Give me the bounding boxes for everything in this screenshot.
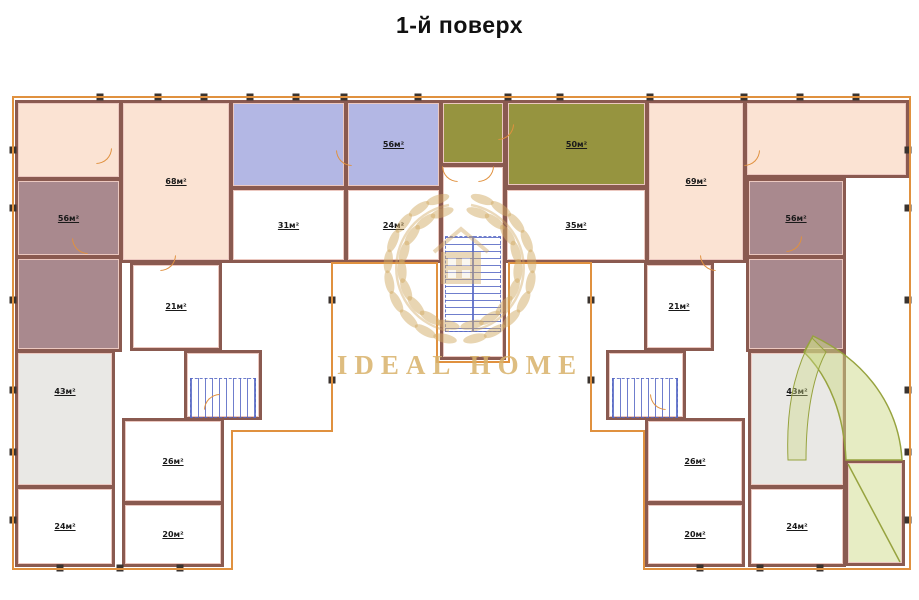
wall-pier [588,377,595,384]
wall-pier [817,565,824,572]
wall-pier [10,517,17,524]
page-title: 1-й поверх [0,12,919,39]
room-area-label: 21м² [668,302,689,311]
watermark-brand-text: IDEAL HOME [300,350,620,381]
room-area-label: 69м² [685,177,706,186]
room-area-label: 31м² [278,221,299,230]
staircase-center [445,236,501,332]
wall-pier [10,205,17,212]
room-35: 35м² [504,187,648,263]
room-area-label: 35м² [565,221,586,230]
room-31: 31м² [230,187,347,263]
room-43-right: 43м² [748,350,846,488]
door-swing-icon [72,238,88,254]
door-swing-icon [650,394,666,410]
stair-hall-center [440,164,506,360]
room-area-label: 21м² [165,302,186,311]
room-24-right: 24м² [748,486,846,567]
wall-pier [697,565,704,572]
door-swing-icon [204,394,220,410]
room-area-label: 43м² [54,387,75,396]
room-43-left: 43м² [15,350,115,488]
room-area-label: 24м² [786,522,807,531]
wall-pier [797,94,804,101]
wall-pier [293,94,300,101]
room-area-label: 20м² [684,530,705,539]
room-21-right: 21м² [644,262,714,351]
wall-pier [588,297,595,304]
wall-pier [505,94,512,101]
room-24-top: 24м² [345,187,442,263]
room-69: 69м² [646,100,746,263]
wall-pier [341,94,348,101]
room-area-label: 20м² [162,530,183,539]
door-swing-icon [498,124,514,140]
wall-pier [905,517,912,524]
staircase-right [612,378,678,418]
staircase-left [190,378,256,418]
room-area-label: 26м² [162,457,183,466]
door-swing-icon [744,150,760,166]
wall-pier [647,94,654,101]
room-56-right: 56м² [746,178,846,258]
wall-pier [853,94,860,101]
room-50: 50м² [505,100,648,188]
wall-pier [57,565,64,572]
floor-plan-page: 1-й поверх 68м²56м²50м²69м²31м²24м²35м²5… [0,0,919,600]
wall-pier [155,94,162,101]
room-area-label: 24м² [383,221,404,230]
wall-pier [97,94,104,101]
room-area-label: 56м² [58,214,79,223]
door-swing-icon [160,255,176,271]
room-area-label: 24м² [54,522,75,531]
wall-pier [905,147,912,154]
room-peach-left-top [15,100,122,180]
room-blue-left [230,100,347,189]
wall-pier [247,94,254,101]
room-area-label: 43м² [786,387,807,396]
wall-pier [905,387,912,394]
terrace-green [845,460,905,566]
room-area-label: 56м² [383,140,404,149]
wall-pier [10,147,17,154]
stair-room-left [184,350,262,420]
room-mauve-right [746,256,846,352]
room-56-left: 56м² [15,178,122,258]
wall-pier [757,565,764,572]
room-peach-right-top [744,100,909,178]
wall-pier [177,565,184,572]
building-footprint [0,0,919,600]
door-swing-icon [336,150,352,166]
door-swing-icon [96,148,112,164]
door-swing-icon [478,166,494,182]
room-68: 68м² [120,100,232,263]
room-21-left: 21м² [130,262,222,351]
room-20-right: 20м² [645,502,745,567]
plan-canvas: 68м²56м²50м²69м²31м²24м²35м²56м²43м²24м²… [0,0,919,600]
room-area-label: 68м² [165,177,186,186]
room-area-label: 26м² [684,457,705,466]
wall-pier [10,387,17,394]
watermark-house-icon [434,229,488,284]
wall-pier [741,94,748,101]
room-26-left: 26м² [122,418,224,504]
room-24-left: 24м² [15,486,115,567]
room-mauve-left [15,256,122,352]
wall-pier [905,449,912,456]
wall-pier [905,297,912,304]
door-swing-icon [442,166,458,182]
wall-pier [905,205,912,212]
stair-room-right [606,350,686,420]
room-area-label: 50м² [566,140,587,149]
wall-pier [557,94,564,101]
wall-pier [415,94,422,101]
wall-pier [117,565,124,572]
room-56-blue: 56м² [345,100,442,189]
door-swing-icon [786,236,802,252]
wall-pier [329,377,336,384]
watermark-laurel-icon [0,0,919,600]
room-green-small [440,100,506,166]
wall-pier [201,94,208,101]
room-area-label: 56м² [785,214,806,223]
room-26-right: 26м² [645,418,745,504]
door-swing-icon [700,255,716,271]
terrace-arc-icon [0,0,919,600]
wall-pier [329,297,336,304]
wall-pier [10,449,17,456]
wall-pier [10,297,17,304]
exterior-wall-outline-icon [0,0,919,600]
room-20-left: 20м² [122,502,224,567]
